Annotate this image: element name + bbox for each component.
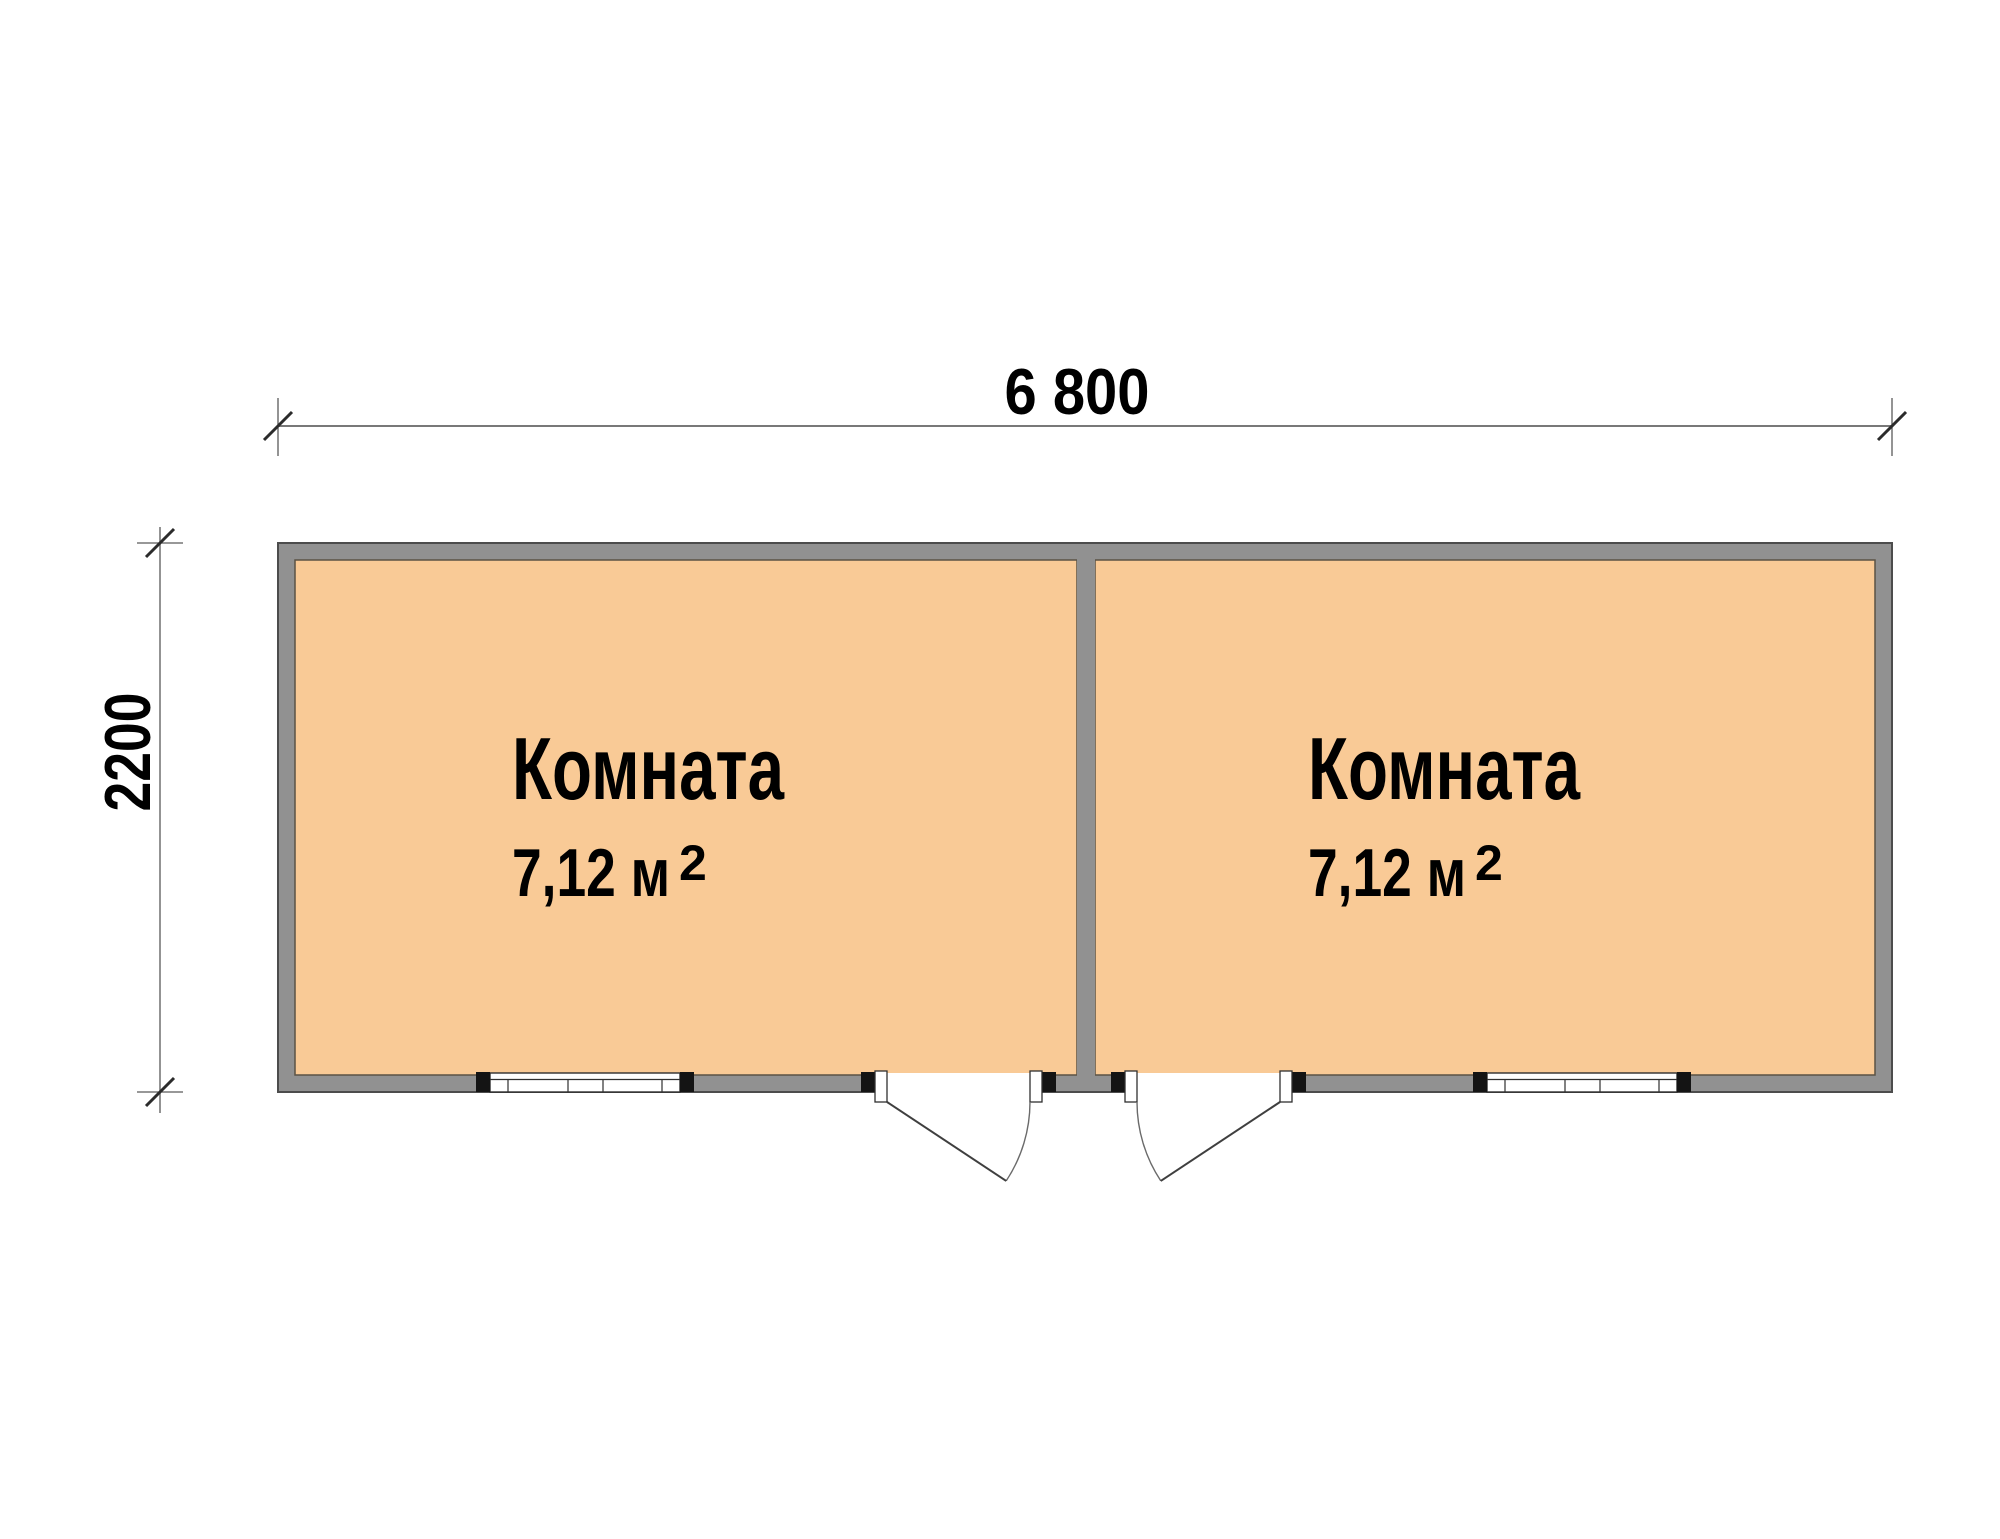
wall-end-cap bbox=[1473, 1072, 1487, 1092]
window-1-frame bbox=[490, 1073, 680, 1092]
door-2-left-jamb bbox=[1125, 1071, 1137, 1102]
door-1-opening bbox=[887, 1073, 1030, 1094]
wall-end-cap bbox=[1292, 1072, 1306, 1092]
window-1 bbox=[490, 1073, 680, 1092]
room-2-name: Комната bbox=[1308, 719, 1581, 818]
room-1-area-superscript: 2 bbox=[679, 835, 707, 891]
wall-end-cap bbox=[1677, 1072, 1691, 1092]
wall-end-cap bbox=[680, 1072, 694, 1092]
room-2-area-superscript: 2 bbox=[1475, 835, 1503, 891]
window-2 bbox=[1487, 1073, 1677, 1092]
room-2-area: 7,12 м bbox=[1308, 835, 1466, 911]
height-dimension-label: 2200 bbox=[91, 693, 164, 812]
floor-plan-page: 6 800 2200 Комната 7,12 м 2 Комната 7,12… bbox=[0, 0, 2000, 1539]
partition-wall bbox=[1077, 559, 1095, 1076]
room-1-name: Комната bbox=[512, 719, 785, 818]
window-2-frame bbox=[1487, 1073, 1677, 1092]
wall-end-cap bbox=[861, 1072, 875, 1092]
door-1-right-jamb bbox=[1030, 1071, 1042, 1102]
wall-end-cap bbox=[476, 1072, 490, 1092]
floor-plan-drawing: 6 800 2200 Комната 7,12 м 2 Комната 7,12… bbox=[0, 0, 2000, 1539]
door-1-left-jamb bbox=[875, 1071, 887, 1102]
door-2-opening bbox=[1137, 1073, 1280, 1094]
door-2-right-jamb bbox=[1280, 1071, 1292, 1102]
width-dimension-label: 6 800 bbox=[1005, 355, 1150, 428]
wall-end-cap bbox=[1042, 1072, 1056, 1092]
wall-end-cap bbox=[1111, 1072, 1125, 1092]
room-1-area: 7,12 м bbox=[512, 835, 670, 911]
